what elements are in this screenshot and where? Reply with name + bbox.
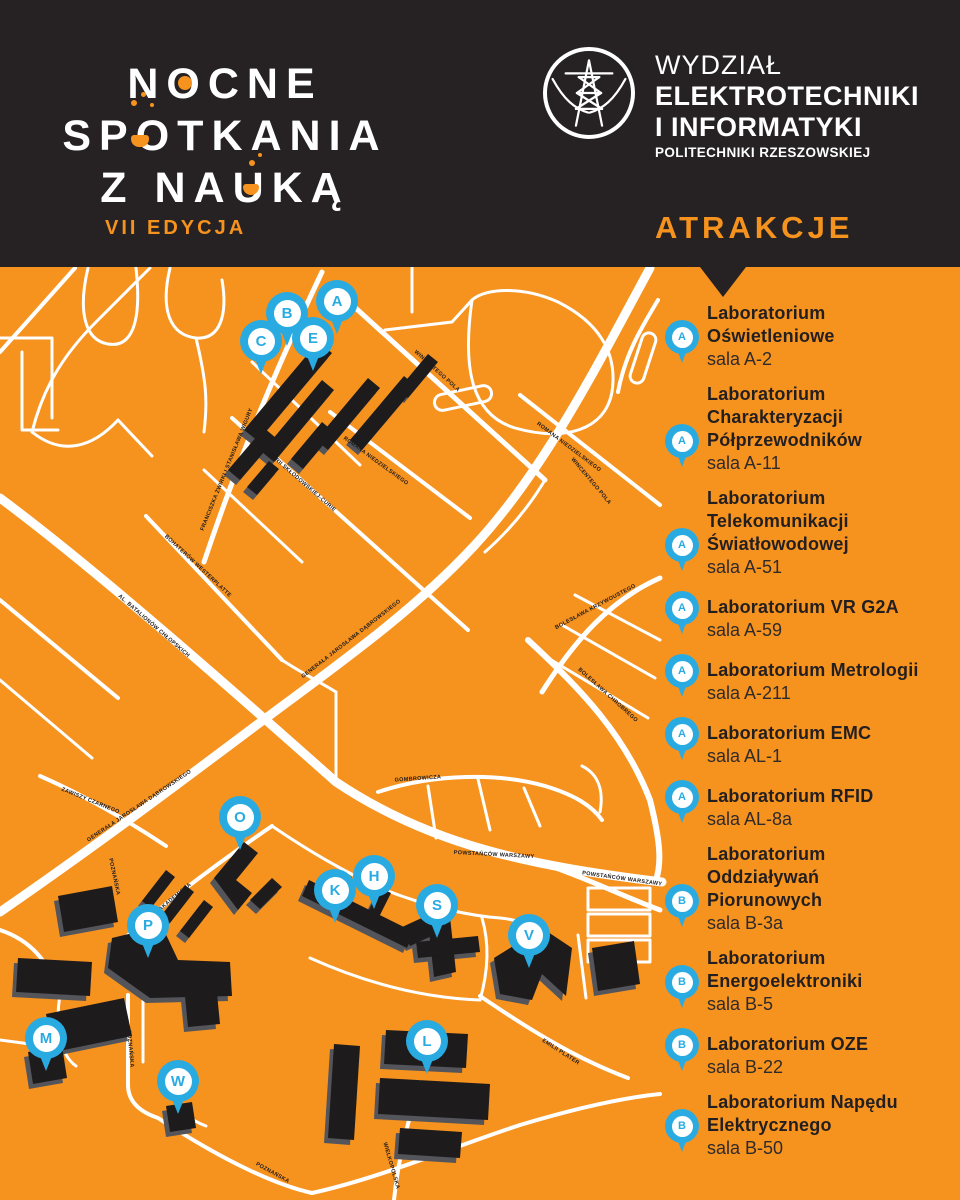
attraction-room: sala AL-1 <box>707 745 929 768</box>
map-marker-V[interactable]: V <box>508 914 550 956</box>
attraction-room: sala AL-8a <box>707 808 929 831</box>
map-marker-O[interactable]: O <box>219 796 261 838</box>
attraction-room: sala A-211 <box>707 682 929 705</box>
attraction-room: sala B-3a <box>707 912 929 935</box>
attraction-name: Laboratorium Oddziaływań Piorunowych <box>707 843 929 912</box>
attraction-item: A Laboratorium Charakteryzacji Półprzewo… <box>664 383 950 475</box>
attraction-item: A Laboratorium Metrologii sala A-211 <box>664 654 950 705</box>
list-pin-icon: A <box>665 320 699 354</box>
header-pointer-arrow <box>700 267 746 297</box>
attraction-item: A Laboratorium Oświetleniowe sala A-2 <box>664 302 950 371</box>
map-marker-A[interactable]: A <box>316 280 358 322</box>
street-labels: FRANCISZKA ŻWIRKI I STANISŁAWA WIGURY MA… <box>60 349 662 1190</box>
attraction-room: sala B-5 <box>707 993 929 1016</box>
attraction-room: sala B-50 <box>707 1137 929 1160</box>
street-label: ROMANA NIEDZIELSKIEGO <box>342 436 410 487</box>
map-marker-K[interactable]: K <box>314 869 356 911</box>
street-label: ZAWISZY CZARNEGO <box>60 787 120 816</box>
list-pin-icon: A <box>665 424 699 458</box>
attractions-list: A Laboratorium Oświetleniowe sala A-2 A … <box>664 302 950 1172</box>
attraction-room: sala A-2 <box>707 348 929 371</box>
map-marker-H[interactable]: H <box>353 855 395 897</box>
bubble-icon <box>131 100 137 106</box>
list-pin-icon: B <box>665 1109 699 1143</box>
attraction-item: A Laboratorium Telekomunikacji Światłowo… <box>664 487 950 579</box>
attraction-name: Laboratorium Napędu Elektrycznego <box>707 1091 929 1137</box>
faculty-line3: I INFORMATYKI <box>655 112 919 143</box>
list-pin-icon: A <box>665 528 699 562</box>
map-marker-E[interactable]: E <box>292 317 334 359</box>
attraction-room: sala B-22 <box>707 1056 929 1079</box>
event-logo-line2: SPOTKANIA <box>55 110 395 162</box>
bubble-icon <box>249 160 255 166</box>
attraction-name: Laboratorium OZE <box>707 1033 929 1056</box>
list-pin-icon: A <box>665 591 699 625</box>
attraction-item: B Laboratorium OZE sala B-22 <box>664 1028 950 1079</box>
map-marker-P[interactable]: P <box>127 904 169 946</box>
moon-accent-icon <box>178 76 192 90</box>
attraction-name: Laboratorium Charakteryzacji Półprzewodn… <box>707 383 929 452</box>
street-label: GENERAŁA JAROSŁAWA DĄBROWSKIEGO <box>301 598 403 680</box>
header: NOCNE SPOTKANIA Z NAUKĄ VII EDYCJA WYDZI… <box>0 0 960 267</box>
faculty-line2: ELEKTROTECHNIKI <box>655 81 919 112</box>
faculty-line4: POLITECHNIKI RZESZOWSKIEJ <box>655 143 919 163</box>
attraction-name: Laboratorium VR G2A <box>707 596 929 619</box>
attraction-item: A Laboratorium RFID sala AL-8a <box>664 780 950 831</box>
map-marker-L[interactable]: L <box>406 1020 448 1062</box>
list-pin-icon: B <box>665 884 699 918</box>
attraction-room: sala A-59 <box>707 619 929 642</box>
attraction-room: sala A-51 <box>707 556 929 579</box>
attraction-name: Laboratorium EMC <box>707 722 929 745</box>
street-label: BOHATERÓW WESTERPLATTE <box>163 532 233 598</box>
map-marker-S[interactable]: S <box>416 884 458 926</box>
list-pin-icon: B <box>665 1028 699 1062</box>
attraction-item: A Laboratorium EMC sala AL-1 <box>664 717 950 768</box>
map-marker-C[interactable]: C <box>240 320 282 362</box>
list-pin-icon: A <box>665 654 699 688</box>
event-logo-line3: Z NAUKĄ <box>55 162 395 214</box>
attraction-item: B Laboratorium Napędu Elektrycznego sala… <box>664 1091 950 1160</box>
faculty-line1: WYDZIAŁ <box>655 50 919 81</box>
buildings <box>16 342 640 1158</box>
event-edition: VII EDYCJA <box>55 216 395 240</box>
attractions-heading: ATRAKCJE <box>655 210 854 246</box>
list-pin-icon: B <box>665 965 699 999</box>
street-label: AL. BATALIONÓW CHŁOPSKICH <box>117 592 192 659</box>
bubble-icon <box>258 153 262 157</box>
attraction-name: Laboratorium Oświetleniowe <box>707 302 929 348</box>
attraction-item: B Laboratorium Oddziaływań Piorunowych s… <box>664 843 950 935</box>
list-pin-icon: A <box>665 717 699 751</box>
attraction-name: Laboratorium Metrologii <box>707 659 929 682</box>
attraction-name: Laboratorium Telekomunikacji Światłowodo… <box>707 487 929 556</box>
bubble-icon <box>150 103 154 107</box>
faculty-name: WYDZIAŁ ELEKTROTECHNIKI I INFORMATYKI PO… <box>655 50 919 163</box>
attraction-item: B Laboratorium Energoelektroniki sala B-… <box>664 947 950 1016</box>
list-pin-icon: A <box>665 780 699 814</box>
attraction-item: A Laboratorium VR G2A sala A-59 <box>664 591 950 642</box>
faculty-logo <box>543 47 635 139</box>
event-logo: NOCNE SPOTKANIA Z NAUKĄ VII EDYCJA <box>55 58 395 240</box>
pylon-icon <box>547 51 631 135</box>
bubble-icon <box>141 92 146 97</box>
attraction-name: Laboratorium Energoelektroniki <box>707 947 929 993</box>
map-marker-M[interactable]: M <box>25 1017 67 1059</box>
attraction-name: Laboratorium RFID <box>707 785 929 808</box>
map-marker-W[interactable]: W <box>157 1060 199 1102</box>
event-logo-line1: NOCNE <box>55 58 395 110</box>
attraction-room: sala A-11 <box>707 452 929 475</box>
